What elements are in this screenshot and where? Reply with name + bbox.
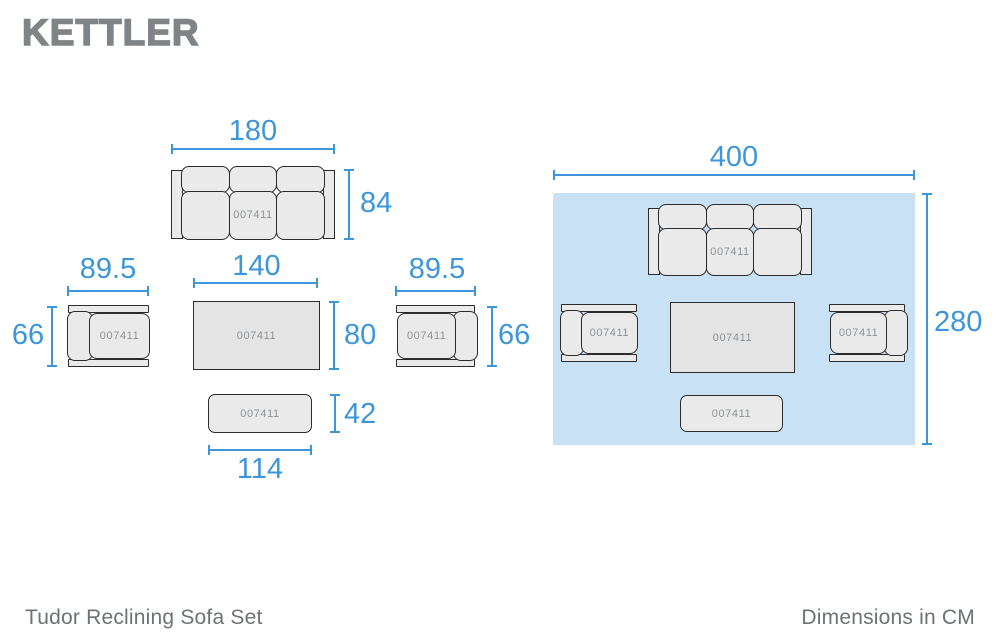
sofa-seat-cushion-row: 007411: [181, 193, 325, 240]
sofa-seat-cushion: [181, 191, 230, 240]
sofa-back-cushion-row: [658, 204, 802, 230]
table-top-view: 007411: [193, 301, 320, 370]
sofa-back-cushion: [181, 166, 230, 193]
sofa-top-view: 007411: [171, 166, 335, 240]
product-code-label: 007411: [712, 408, 752, 420]
sofa-depth-dimension-line: [348, 169, 350, 240]
bench-depth-dimension: 42: [344, 400, 388, 429]
sofa-back-cushion: [753, 204, 802, 230]
bench-width-dimension-line: [208, 449, 312, 451]
sofa-cushions: 007411: [658, 204, 802, 276]
arrangement-armchair-left: 007411: [560, 304, 640, 362]
product-code-label: 007411: [240, 408, 280, 420]
product-code-label: 007411: [839, 327, 879, 339]
sofa-cushions: 007411: [181, 166, 325, 240]
armchair-seat: 007411: [830, 312, 887, 355]
product-code-label: 007411: [713, 332, 753, 344]
table-depth-dimension: 80: [344, 321, 388, 350]
sofa-seat-cushion: [658, 228, 707, 276]
armchair-right-width-dimension-line: [395, 290, 476, 292]
armchair-right-depth-dimension: 66: [498, 321, 542, 350]
sofa-seat-cushion: 007411: [706, 228, 755, 276]
arrangement-armchair-right: 007411: [828, 304, 908, 362]
armchair-back-cushion: [884, 310, 908, 356]
dimension-diagram-page: { "header": { "brand": "KETTLER" }, "pro…: [0, 0, 1000, 643]
armchair-left-width-dimension-line: [67, 290, 149, 292]
sofa-width-dimension: 180: [171, 117, 335, 146]
sofa-back-cushion: [706, 204, 755, 230]
sofa-back-cushion: [276, 166, 325, 193]
armchair-left-depth-dimension-line: [51, 306, 53, 367]
arrangement-bench: 007411: [680, 395, 783, 432]
armchair-left-depth-dimension: 66: [6, 321, 50, 350]
armchair-back-cushion: [453, 311, 478, 361]
armchair-left-width-dimension: 89.5: [48, 255, 168, 284]
footprint-depth-dimension-line: [926, 193, 928, 445]
arrangement-table: 007411: [670, 302, 795, 373]
table-width-dimension-line: [193, 282, 318, 284]
arrangement-sofa: 007411: [648, 204, 812, 276]
armchair-seat: 007411: [89, 313, 150, 359]
sofa-width-dimension-line: [171, 148, 335, 150]
bench-top-view: 007411: [208, 394, 312, 433]
sofa-seat-cushion-row: 007411: [658, 230, 802, 276]
product-code-label: 007411: [233, 209, 273, 221]
units-label: Dimensions in CM: [801, 606, 975, 630]
table-depth-dimension-line: [333, 301, 335, 370]
sofa-back-cushion-row: [181, 166, 325, 193]
armchair-left-top-view: 007411: [67, 305, 152, 367]
armchair-right-top-view: 007411: [395, 305, 478, 367]
sofa-seat-cushion: [753, 228, 802, 276]
brand-logo: KETTLER: [22, 12, 200, 54]
product-code-label: 007411: [407, 330, 447, 342]
table-width-dimension: 140: [193, 252, 320, 281]
armchair-right-depth-dimension-line: [491, 306, 493, 367]
product-code-label: 007411: [710, 246, 750, 258]
footprint-width-dimension-line: [553, 174, 915, 176]
product-code-label: 007411: [237, 330, 277, 342]
bench-width-dimension: 114: [208, 455, 312, 484]
sofa-seat-cushion: 007411: [229, 191, 278, 240]
sofa-depth-dimension: 84: [360, 189, 410, 218]
bench-depth-dimension-line: [334, 394, 336, 433]
armchair-seat: 007411: [581, 312, 638, 355]
product-code-label: 007411: [100, 330, 140, 342]
sofa-seat-cushion: [276, 191, 325, 240]
armchair-seat: 007411: [397, 313, 456, 359]
footprint-width-dimension: 400: [553, 143, 915, 172]
armchair-right-width-dimension: 89.5: [382, 255, 492, 284]
footprint-depth-dimension: 280: [934, 308, 994, 337]
product-title: Tudor Reclining Sofa Set: [25, 606, 262, 630]
sofa-back-cushion: [229, 166, 278, 193]
product-code-label: 007411: [590, 327, 630, 339]
sofa-back-cushion: [658, 204, 707, 230]
